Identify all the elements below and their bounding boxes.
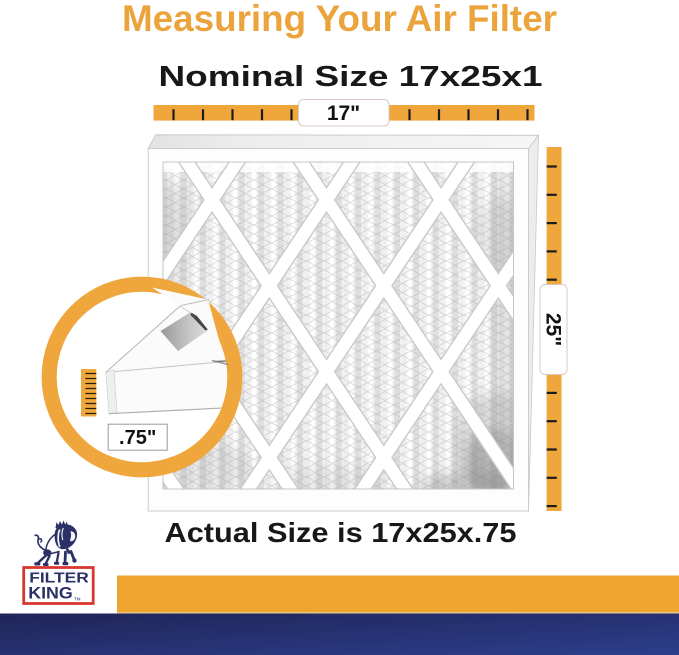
svg-text:Actual Size is 17x25x.75: Actual Size is 17x25x.75	[165, 517, 517, 548]
svg-text:Nominal Size 17x25x1: Nominal Size 17x25x1	[159, 61, 543, 93]
svg-text:TM: TM	[74, 597, 81, 602]
svg-text:17": 17"	[327, 102, 360, 125]
svg-text:25": 25"	[542, 313, 565, 346]
svg-text:KING: KING	[28, 583, 73, 602]
svg-text:.75": .75"	[119, 427, 156, 449]
svg-text:Measuring Your Air Filter: Measuring Your Air Filter	[122, 0, 557, 39]
